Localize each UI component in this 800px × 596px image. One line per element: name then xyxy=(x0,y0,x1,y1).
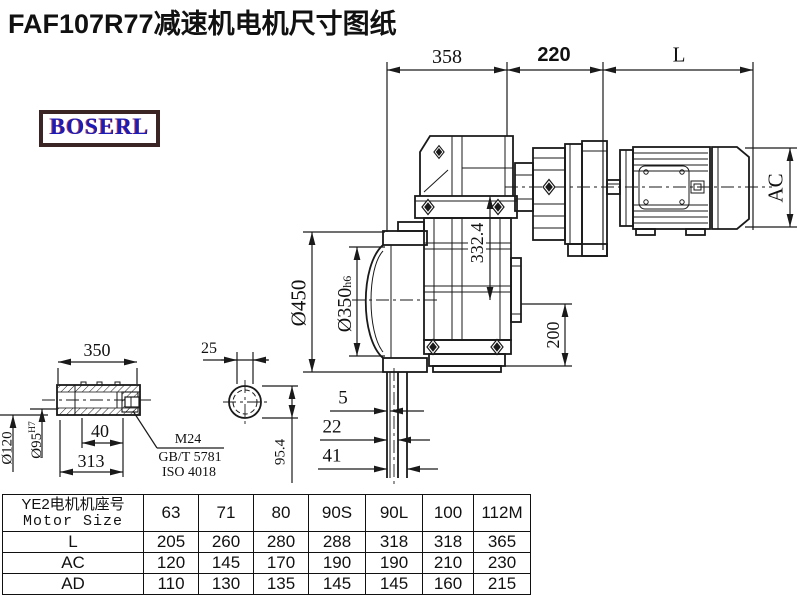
table-cell: 160 xyxy=(423,574,474,595)
motor-size-header-cell: YE2电机机座号 Motor Size xyxy=(3,495,144,532)
dim-label-L: L xyxy=(673,45,686,66)
table-cell: 230 xyxy=(474,553,531,574)
dim-label-95-4: 95.4 xyxy=(274,439,289,465)
spigot-value: Ø350 xyxy=(334,288,356,332)
drawing-page: FAF107R77减速机电机尺寸图纸 BOSERL 358 220 L AC Ø… xyxy=(0,0,800,596)
dim-label-313: 313 xyxy=(78,452,105,470)
shaft-detail xyxy=(57,382,140,415)
dim-label-center-height: 332.4 xyxy=(468,221,486,266)
dim-label-base-height: 200 xyxy=(544,320,562,351)
table-header-row: YE2电机机座号 Motor Size 63 71 80 90S 90L 100… xyxy=(3,495,531,532)
table-cell: 365 xyxy=(474,532,531,553)
size-col-header: 90S xyxy=(309,495,366,532)
size-col-header: 90L xyxy=(366,495,423,532)
motor-outline xyxy=(515,141,749,256)
dim-label-step-22: 22 xyxy=(323,418,342,437)
size-col-header: 100 xyxy=(423,495,474,532)
table-cell: 120 xyxy=(144,553,199,574)
motor-dimension-table: YE2电机机座号 Motor Size 63 71 80 90S 90L 100… xyxy=(2,494,531,595)
row-label: AD xyxy=(3,574,144,595)
size-col-header: 71 xyxy=(199,495,254,532)
callout-standard-iso: ISO 4018 xyxy=(162,466,216,480)
page-title: FAF107R77减速机电机尺寸图纸 xyxy=(8,2,397,41)
dim-label-spigot-dia: Ø350h6 xyxy=(335,276,355,332)
table-cell: 130 xyxy=(199,574,254,595)
dim-label-bore-dia: Ø95H7 xyxy=(29,421,45,458)
size-col-header: 63 xyxy=(144,495,199,532)
bore-tolerance: H7 xyxy=(28,421,38,433)
table-cell: 260 xyxy=(199,532,254,553)
table-cell: 288 xyxy=(309,532,366,553)
table-row-AD: AD 110 130 135 145 145 160 215 xyxy=(3,574,531,595)
table-cell: 280 xyxy=(254,532,309,553)
gearbox-outline xyxy=(366,136,521,478)
motor-size-header-cn: YE2电机机座号 xyxy=(3,496,143,513)
callout-thread: M24 xyxy=(175,433,201,447)
dim-label-358: 358 xyxy=(432,47,462,67)
dim-label-350: 350 xyxy=(84,341,111,359)
table-cell: 190 xyxy=(309,553,366,574)
callout-standard-gb: GB/T 5781 xyxy=(158,451,221,465)
dim-label-40: 40 xyxy=(91,422,109,440)
table-cell: 215 xyxy=(474,574,531,595)
table-cell: 190 xyxy=(366,553,423,574)
dim-label-step-41: 41 xyxy=(323,447,342,466)
size-col-header: 112M xyxy=(474,495,531,532)
row-label: L xyxy=(3,532,144,553)
table-cell: 110 xyxy=(144,574,199,595)
dim-label-flange-dia: Ø450 xyxy=(289,280,310,327)
dim-label-AC: AC xyxy=(766,173,787,202)
motor-size-header-en: Motor Size xyxy=(3,513,143,530)
table-cell: 145 xyxy=(199,553,254,574)
table-cell: 318 xyxy=(366,532,423,553)
size-col-header: 80 xyxy=(254,495,309,532)
dim-label-220: 220 xyxy=(537,45,570,65)
table-row-AC: AC 120 145 170 190 190 210 230 xyxy=(3,553,531,574)
table-cell: 318 xyxy=(423,532,474,553)
table-cell: 145 xyxy=(366,574,423,595)
table-cell: 135 xyxy=(254,574,309,595)
brand-logo-text: BOSERL xyxy=(50,114,149,139)
brand-logo: BOSERL xyxy=(39,110,160,147)
dim-label-step-5: 5 xyxy=(338,389,348,408)
table-cell: 210 xyxy=(423,553,474,574)
table-cell: 205 xyxy=(144,532,199,553)
table-row-L: L 205 260 280 288 318 318 365 xyxy=(3,532,531,553)
dim-label-25: 25 xyxy=(201,341,217,357)
spigot-tolerance: h6 xyxy=(340,276,354,288)
bore-value: Ø95 xyxy=(29,433,45,459)
row-label: AC xyxy=(3,553,144,574)
dim-label-hub-dia: Ø120 xyxy=(1,431,16,464)
table-cell: 145 xyxy=(309,574,366,595)
table-cell: 170 xyxy=(254,553,309,574)
